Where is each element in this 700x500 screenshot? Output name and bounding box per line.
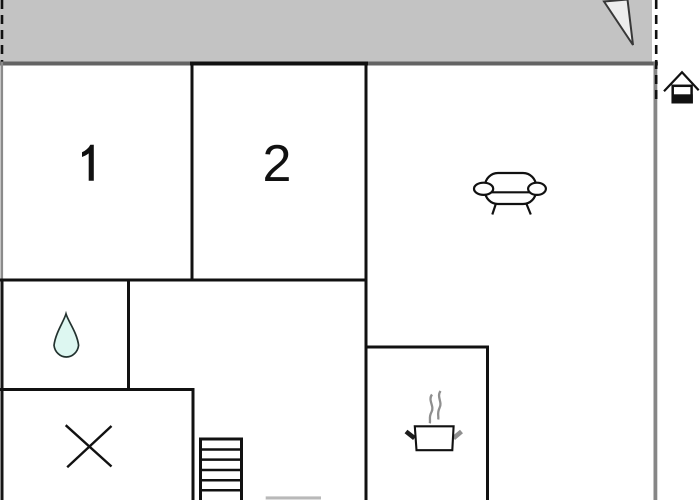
svg-text:2: 2 <box>263 135 292 193</box>
